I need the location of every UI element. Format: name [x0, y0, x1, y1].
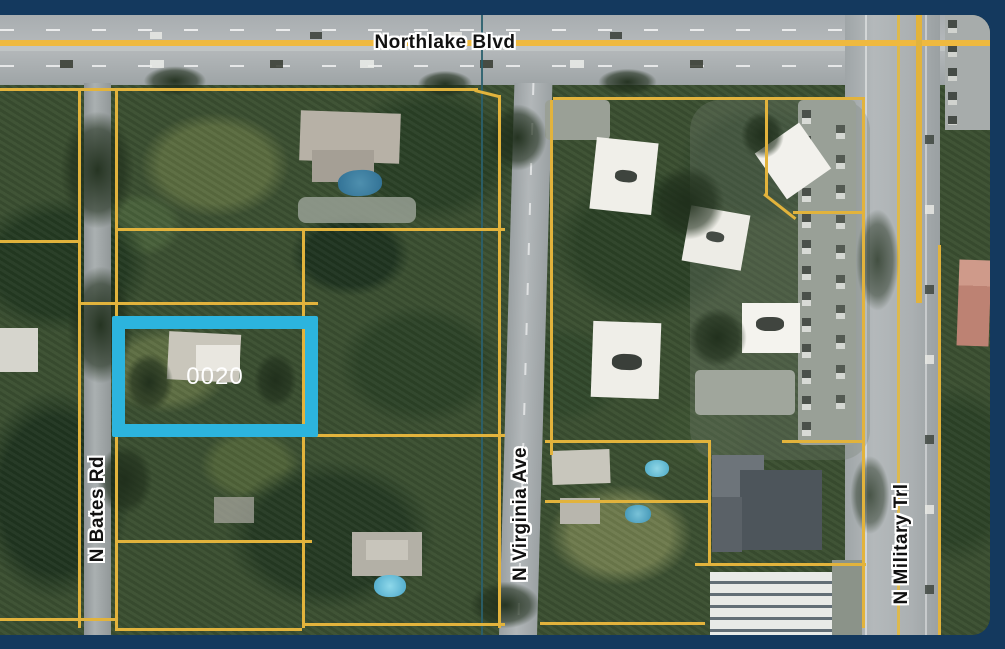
parked-cars [948, 20, 957, 125]
street-label-northlake-blvd: Northlake Blvd [340, 32, 550, 54]
tree-canopy [135, 62, 215, 100]
parcel-boundary-line [115, 628, 302, 631]
parcel-boundary-line [0, 618, 115, 621]
map-viewport: 0020 Northlake Blvd N Bates Rd N Virgini… [0, 0, 1005, 649]
tree-canopy [480, 95, 555, 180]
street-label-n-bates-rd: N Bates Rd [87, 419, 109, 599]
aerial-map[interactable]: 0020 Northlake Blvd N Bates Rd N Virgini… [0, 15, 990, 635]
municipal-boundary-line [481, 15, 483, 635]
swimming-pool [645, 460, 669, 477]
lane-marking [0, 29, 990, 31]
street-label-n-virginia-ave: N Virginia Ave [510, 424, 532, 604]
parcel-number-label: 0020 [186, 363, 243, 391]
parcel-boundary-line [302, 623, 505, 626]
building-roof [740, 470, 822, 550]
building-roof [366, 540, 408, 560]
parcel-boundary-line [545, 500, 708, 503]
selected-parcel-outline[interactable]: 0020 [112, 316, 318, 437]
parcel-boundary-line [916, 15, 922, 303]
building-roof [0, 328, 38, 372]
parked-cars [836, 125, 845, 425]
building-roof [712, 497, 742, 552]
parcel-boundary-line [78, 302, 318, 305]
parking-lot [695, 370, 795, 415]
tree-canopy [50, 95, 145, 245]
parcel-boundary-line [793, 211, 862, 214]
parcel-boundary-line [0, 240, 80, 243]
parcel-boundary-line [938, 245, 941, 635]
tree-canopy [410, 67, 480, 101]
street-label-n-military-trl: N Military Trl [891, 454, 913, 634]
tree-canopy [680, 300, 755, 375]
tree-canopy [640, 155, 735, 250]
parcel-boundary-line [0, 88, 478, 91]
parcel-boundary-line [708, 440, 711, 566]
parcel-boundary-line [115, 228, 505, 231]
swimming-pool [625, 505, 651, 523]
parcel-boundary-line [553, 97, 862, 100]
tree-canopy [850, 195, 905, 325]
tree-canopy [590, 65, 665, 99]
tree-canopy [460, 575, 550, 635]
rooftop-unit [612, 354, 643, 371]
building-roof [591, 321, 662, 399]
building-roof [551, 449, 610, 485]
swimming-pool [374, 575, 406, 597]
tree-canopy [735, 105, 790, 165]
parcel-boundary-line [765, 97, 768, 195]
building-roof [832, 560, 862, 635]
driveway [298, 197, 416, 223]
tree-canopy [845, 445, 895, 545]
parcel-boundary-line [540, 622, 705, 625]
parcel-boundary-line [695, 563, 866, 566]
building-roof [214, 497, 254, 523]
building-roof-red [957, 259, 990, 346]
parcel-boundary-line [115, 540, 312, 543]
rooftop-unit [756, 317, 784, 331]
parcel-boundary-line [498, 95, 501, 628]
parcel-boundary-line [545, 440, 708, 443]
parcel-boundary-line [862, 97, 865, 628]
parcel-boundary-line [550, 100, 553, 455]
parcel-boundary-line [78, 88, 81, 628]
rooftop-unit [614, 169, 637, 183]
building-roof [710, 572, 832, 635]
parcel-boundary-line [782, 440, 862, 443]
parked-cars [925, 135, 934, 615]
